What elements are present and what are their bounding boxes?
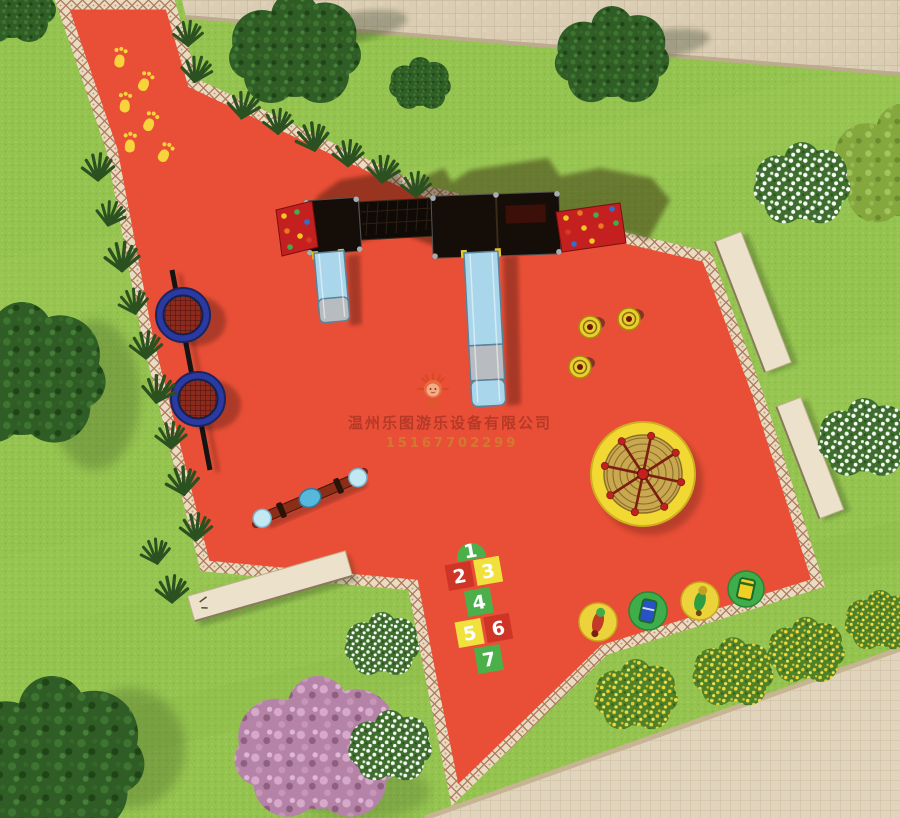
watermark-company-name: 温州乐图游乐设备有限公司 — [348, 414, 552, 432]
trampoline-mesh — [179, 380, 218, 419]
site-plan-rendering: 1 2 3 4 5 6 7 — [0, 0, 900, 818]
spring-rider — [681, 582, 719, 620]
slide-chute — [464, 251, 503, 346]
dome-hub — [638, 469, 649, 480]
slide-end — [471, 379, 506, 407]
trampoline-mesh — [164, 296, 203, 335]
slide-mid-section — [469, 344, 505, 381]
right-climbing-wall — [556, 203, 626, 252]
spring-rider — [629, 592, 667, 630]
watermark-phone-number: 15167702299 — [386, 436, 519, 451]
spring-rider — [579, 603, 617, 641]
spring-rider — [728, 571, 764, 607]
tree — [229, 0, 361, 103]
playground-site-plan: 1 2 3 4 5 6 7 — [0, 0, 900, 818]
